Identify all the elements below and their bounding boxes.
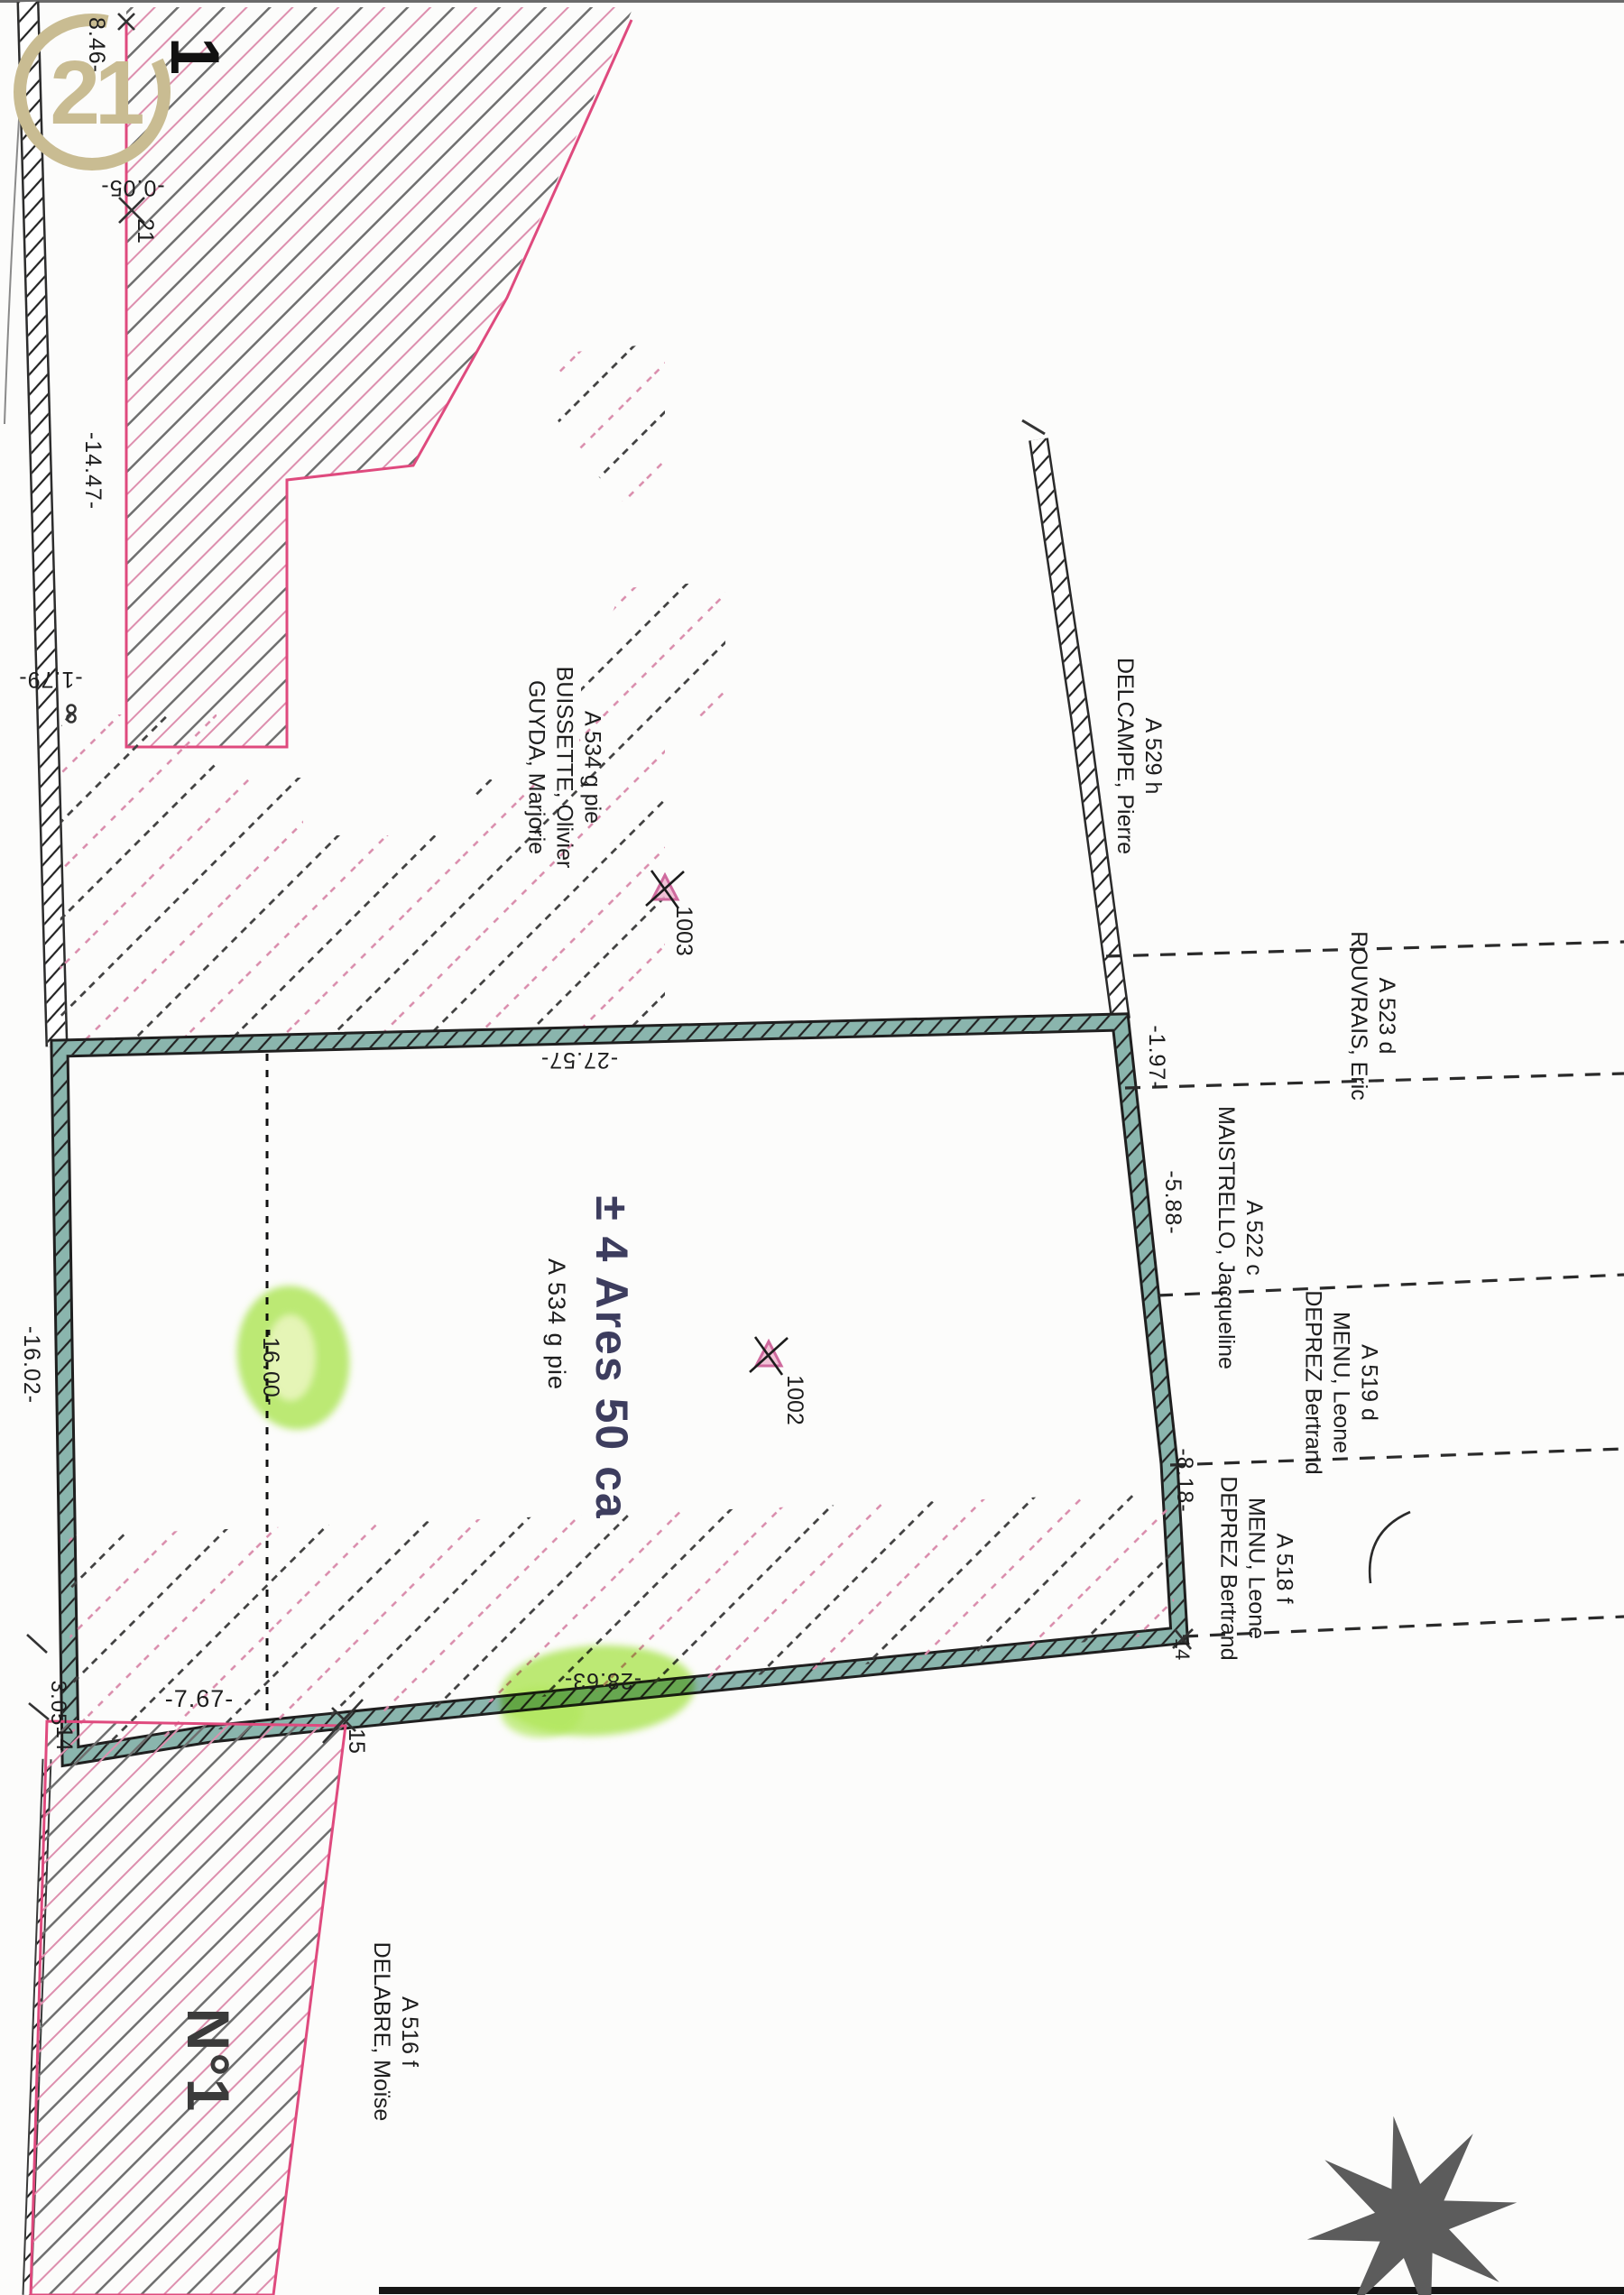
parcel-ref: A 519 d — [1355, 1279, 1383, 1487]
parcel-label-menu-519: A 519 d MENU, Leone DEPREZ Bertrand — [1299, 1279, 1383, 1487]
parcel-ref: A 534 g pie — [578, 601, 606, 935]
hatched-area-dotted-a — [558, 343, 665, 502]
measurement-0-05: -0.05- — [83, 174, 182, 199]
brace-curve — [1370, 1512, 1410, 1583]
big-numeral: 1 — [158, 29, 230, 83]
parcel-ref: A 516 f — [395, 1905, 423, 2158]
parcel-owner: MAISTRELLO, Jacqueline — [1212, 1044, 1240, 1432]
parcel-owner: BUISSETTE, Olivier — [550, 601, 578, 935]
parcel-label-buissette: A 534 g pie BUISSETTE, Olivier GUYDA, Ma… — [522, 601, 606, 935]
fence-band — [1022, 420, 1121, 1019]
compass-rose-icon — [1307, 2116, 1517, 2295]
survey-plan-page: 21 1 8.46- -0.05- 21 -14.47- -1.79- A 53… — [0, 0, 1624, 2295]
parcel-owner: DELCAMPE, Pierre — [1111, 616, 1139, 896]
lot-number-label: N°1 — [171, 2002, 244, 2119]
parcel-label-maistrello: A 522 c MAISTRELLO, Jacqueline — [1212, 1044, 1268, 1432]
measurement-27-57: -27.57- — [525, 1046, 633, 1072]
parcel-label-rouvrais: A 523 d ROUVRAIS, Eric — [1344, 903, 1400, 1129]
parcel-owner: DEPREZ Bertrand — [1299, 1279, 1327, 1487]
measurement-8-18: -8.18- — [1171, 1435, 1196, 1525]
point-label-14-right: 14 — [1170, 1627, 1194, 1672]
point-label-14-left: 14 — [51, 1716, 76, 1761]
parcel-label-delcampe: A 529 h DELCAMPE, Pierre — [1111, 616, 1167, 896]
parcel-owner: DELABRE, Moïse — [367, 1905, 395, 2158]
measurement-14-47: -14.47- — [78, 412, 106, 530]
parcel-owner: MENU, Leone — [1327, 1279, 1355, 1487]
scan-edge-bottom — [379, 2287, 1624, 2294]
parcel-ref: A 518 f — [1270, 1465, 1298, 1673]
measurement-8-46: 8.46- — [82, 0, 109, 95]
measurement-1-97: -1.97- — [1143, 1012, 1168, 1102]
point-label-1003: 1003 — [669, 890, 697, 972]
parcel-ref: A 522 c — [1240, 1044, 1268, 1432]
point-label-21: 21 — [131, 204, 158, 258]
parcel-label-delabre: A 516 f DELABRE, Moïse — [367, 1905, 423, 2158]
measurement-7-67: -7.67- — [145, 1686, 254, 1713]
parcel-area-label: ± 4 Ares 50 ca — [585, 1168, 639, 1547]
point-label-15: 15 — [343, 1719, 368, 1764]
parcel-owner: GUYDA, Marjorie — [522, 601, 550, 935]
parcel-ref: A 529 h — [1139, 616, 1167, 896]
parcel-ref: A 523 d — [1372, 903, 1400, 1129]
parcel-owner: DEPREZ Bertrand — [1214, 1465, 1242, 1673]
survey-plan-drawing — [0, 0, 1624, 2295]
measurement-5-88: -5.88- — [1159, 1157, 1185, 1248]
measurement-16-00: -16.00- — [256, 1313, 283, 1422]
point-label-1002: 1002 — [780, 1359, 807, 1441]
parcel-owner: MENU, Leone — [1242, 1465, 1270, 1673]
parcel-label-menu-518: A 518 f MENU, Leone DEPREZ Bertrand — [1214, 1465, 1298, 1673]
measurement-28-63: -28.63- — [549, 1667, 657, 1692]
parcel-ref-label: A 534 g pie — [542, 1252, 569, 1396]
scan-edge-top — [0, 0, 1624, 3]
measurement-1-79: -1.79- — [5, 666, 96, 691]
measurement-16-02: -16.02- — [17, 1311, 44, 1419]
parcel-owner: ROUVRAIS, Eric — [1344, 903, 1372, 1129]
